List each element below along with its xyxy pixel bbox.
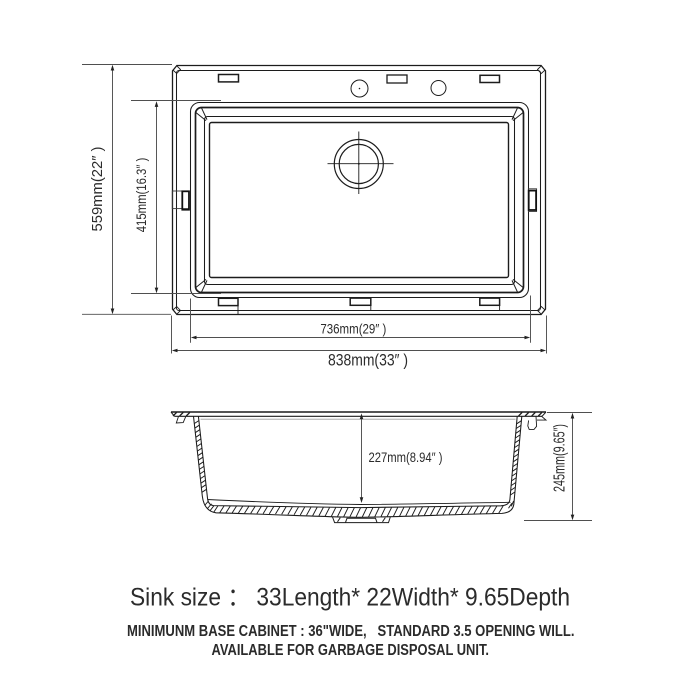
svg-text:838mm(33″ ): 838mm(33″ ) (328, 351, 408, 369)
svg-text:245mm(9.65″): 245mm(9.65″) (552, 424, 569, 492)
svg-text:227mm(8.94″ ): 227mm(8.94″ ) (369, 450, 443, 465)
svg-text:Sink size ： 33Length* 22Width*: Sink size ： 33Length* 22Width* 9.65Depth (130, 584, 570, 612)
svg-text:MINIMUNM BASE CABINET : 36"WID: MINIMUNM BASE CABINET : 36"WIDE, STANDAR… (127, 623, 575, 640)
svg-text:AVAILABLE FOR GARBAGE DISPOSAL: AVAILABLE FOR GARBAGE DISPOSAL UNIT. (212, 642, 490, 659)
svg-text:736mm(29″ ): 736mm(29″ ) (320, 321, 386, 336)
svg-text:559mm(22″ ): 559mm(22″ ) (90, 147, 106, 232)
svg-text:415mm(16.3″ ): 415mm(16.3″ ) (134, 158, 149, 233)
